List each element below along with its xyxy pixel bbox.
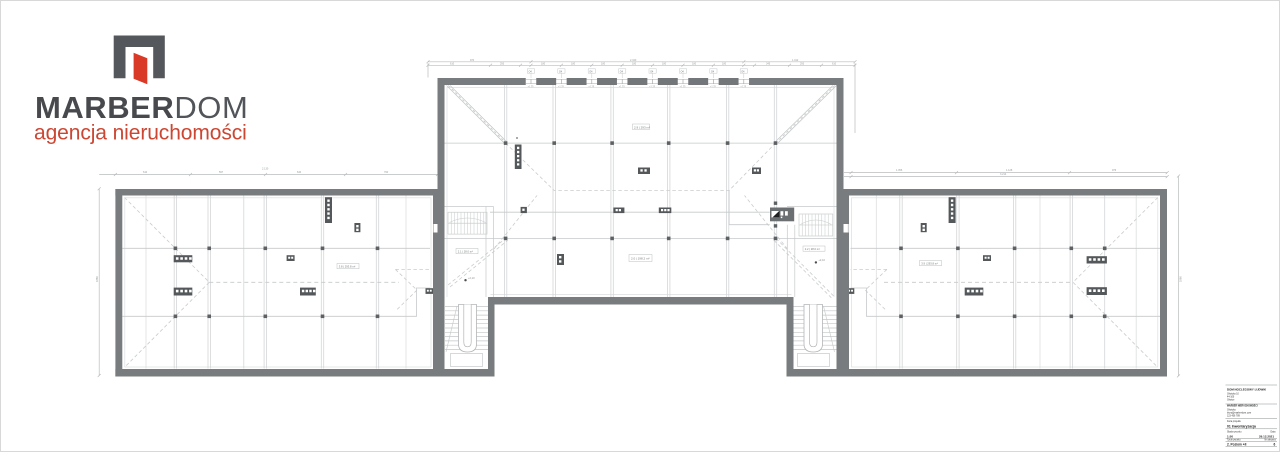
svg-text:biuro@marberdom.com: biuro@marberdom.com <box>1227 412 1251 415</box>
svg-text:2.9 | 293 m²: 2.9 | 293 m² <box>634 125 650 129</box>
svg-text:610: 610 <box>143 171 148 174</box>
svg-text:597: 597 <box>219 171 224 174</box>
svg-text:3.8 | 293.8 m²: 3.8 | 293.8 m² <box>339 265 356 269</box>
svg-text:Gliwicka: Gliwicka <box>1227 410 1236 412</box>
svg-text:180: 180 <box>601 63 606 66</box>
svg-text:293: 293 <box>500 63 505 66</box>
svg-text:29.12.2021: 29.12.2021 <box>1259 434 1274 438</box>
svg-text:1866: 1866 <box>95 276 99 282</box>
svg-text:+2,10: +2,10 <box>468 276 475 280</box>
svg-text:180: 180 <box>541 63 546 66</box>
svg-text:2.0 | 198.2 m²: 2.0 | 198.2 m² <box>631 257 649 261</box>
svg-text:293: 293 <box>800 63 805 66</box>
svg-text:970: 970 <box>470 59 475 62</box>
svg-text:2.130: 2.130 <box>262 168 269 171</box>
svg-text:1866: 1866 <box>1179 276 1183 282</box>
svg-text:1:50: 1:50 <box>1227 434 1233 438</box>
svg-text:2.2 | 28.0 m²: 2.2 | 28.0 m² <box>805 247 820 251</box>
svg-text:123 456 789: 123 456 789 <box>1227 416 1240 418</box>
svg-text:Data: Data <box>1271 430 1277 433</box>
svg-text:180: 180 <box>571 63 576 66</box>
svg-text:Nr arkusza: Nr arkusza <box>1265 439 1277 442</box>
svg-text:180: 180 <box>692 63 697 66</box>
svg-text:+2,10: +2,10 <box>818 258 825 262</box>
svg-text:610: 610 <box>450 63 455 66</box>
svg-text:180: 180 <box>662 63 667 66</box>
svg-text:1.128: 1.128 <box>1006 169 1013 172</box>
svg-text:MARBERDOM: MARBERDOM <box>35 90 248 125</box>
svg-text:01 Inwentaryzacja: 01 Inwentaryzacja <box>1227 425 1256 429</box>
svg-text:MARBER NIERUCHOMOŚCI: MARBER NIERUCHOMOŚCI <box>1227 405 1258 408</box>
svg-text:DOM NOCLEGOWY LUDWIK: DOM NOCLEGOWY LUDWIK <box>1227 388 1267 392</box>
svg-text:Skala rysunku: Skala rysunku <box>1227 430 1242 433</box>
svg-text:1.056: 1.056 <box>896 169 903 172</box>
svg-text:3.214: 3.214 <box>1000 173 1007 176</box>
svg-text:640: 640 <box>297 171 302 174</box>
svg-text:Faza projektu: Faza projektu <box>1227 420 1242 423</box>
svg-text:610: 610 <box>832 63 837 66</box>
svg-text:Gliwice: Gliwice <box>1227 400 1235 402</box>
svg-text:6: 6 <box>1274 442 1276 446</box>
svg-text:agencja nieruchomości: agencja nieruchomości <box>34 122 247 145</box>
svg-text:3.9 | 293.8 m²: 3.9 | 293.8 m² <box>921 262 938 266</box>
svg-text:760: 760 <box>384 171 389 174</box>
svg-text:Gliwicka 10: Gliwicka 10 <box>1227 394 1239 396</box>
svg-text:976: 976 <box>1112 169 1117 172</box>
svg-text:44-100: 44-100 <box>1227 397 1235 399</box>
svg-text:1.012: 1.012 <box>792 59 799 62</box>
svg-text:180: 180 <box>722 63 727 66</box>
svg-text:345: 345 <box>766 63 771 66</box>
svg-text:180: 180 <box>632 63 637 66</box>
svg-text:2. Poziom +II: 2. Poziom +II <box>1227 442 1247 446</box>
svg-text:Tytuł rysunku: Tytuł rysunku <box>1227 439 1241 442</box>
svg-text:2.1 | 28.0 m²: 2.1 | 28.0 m² <box>458 250 473 254</box>
